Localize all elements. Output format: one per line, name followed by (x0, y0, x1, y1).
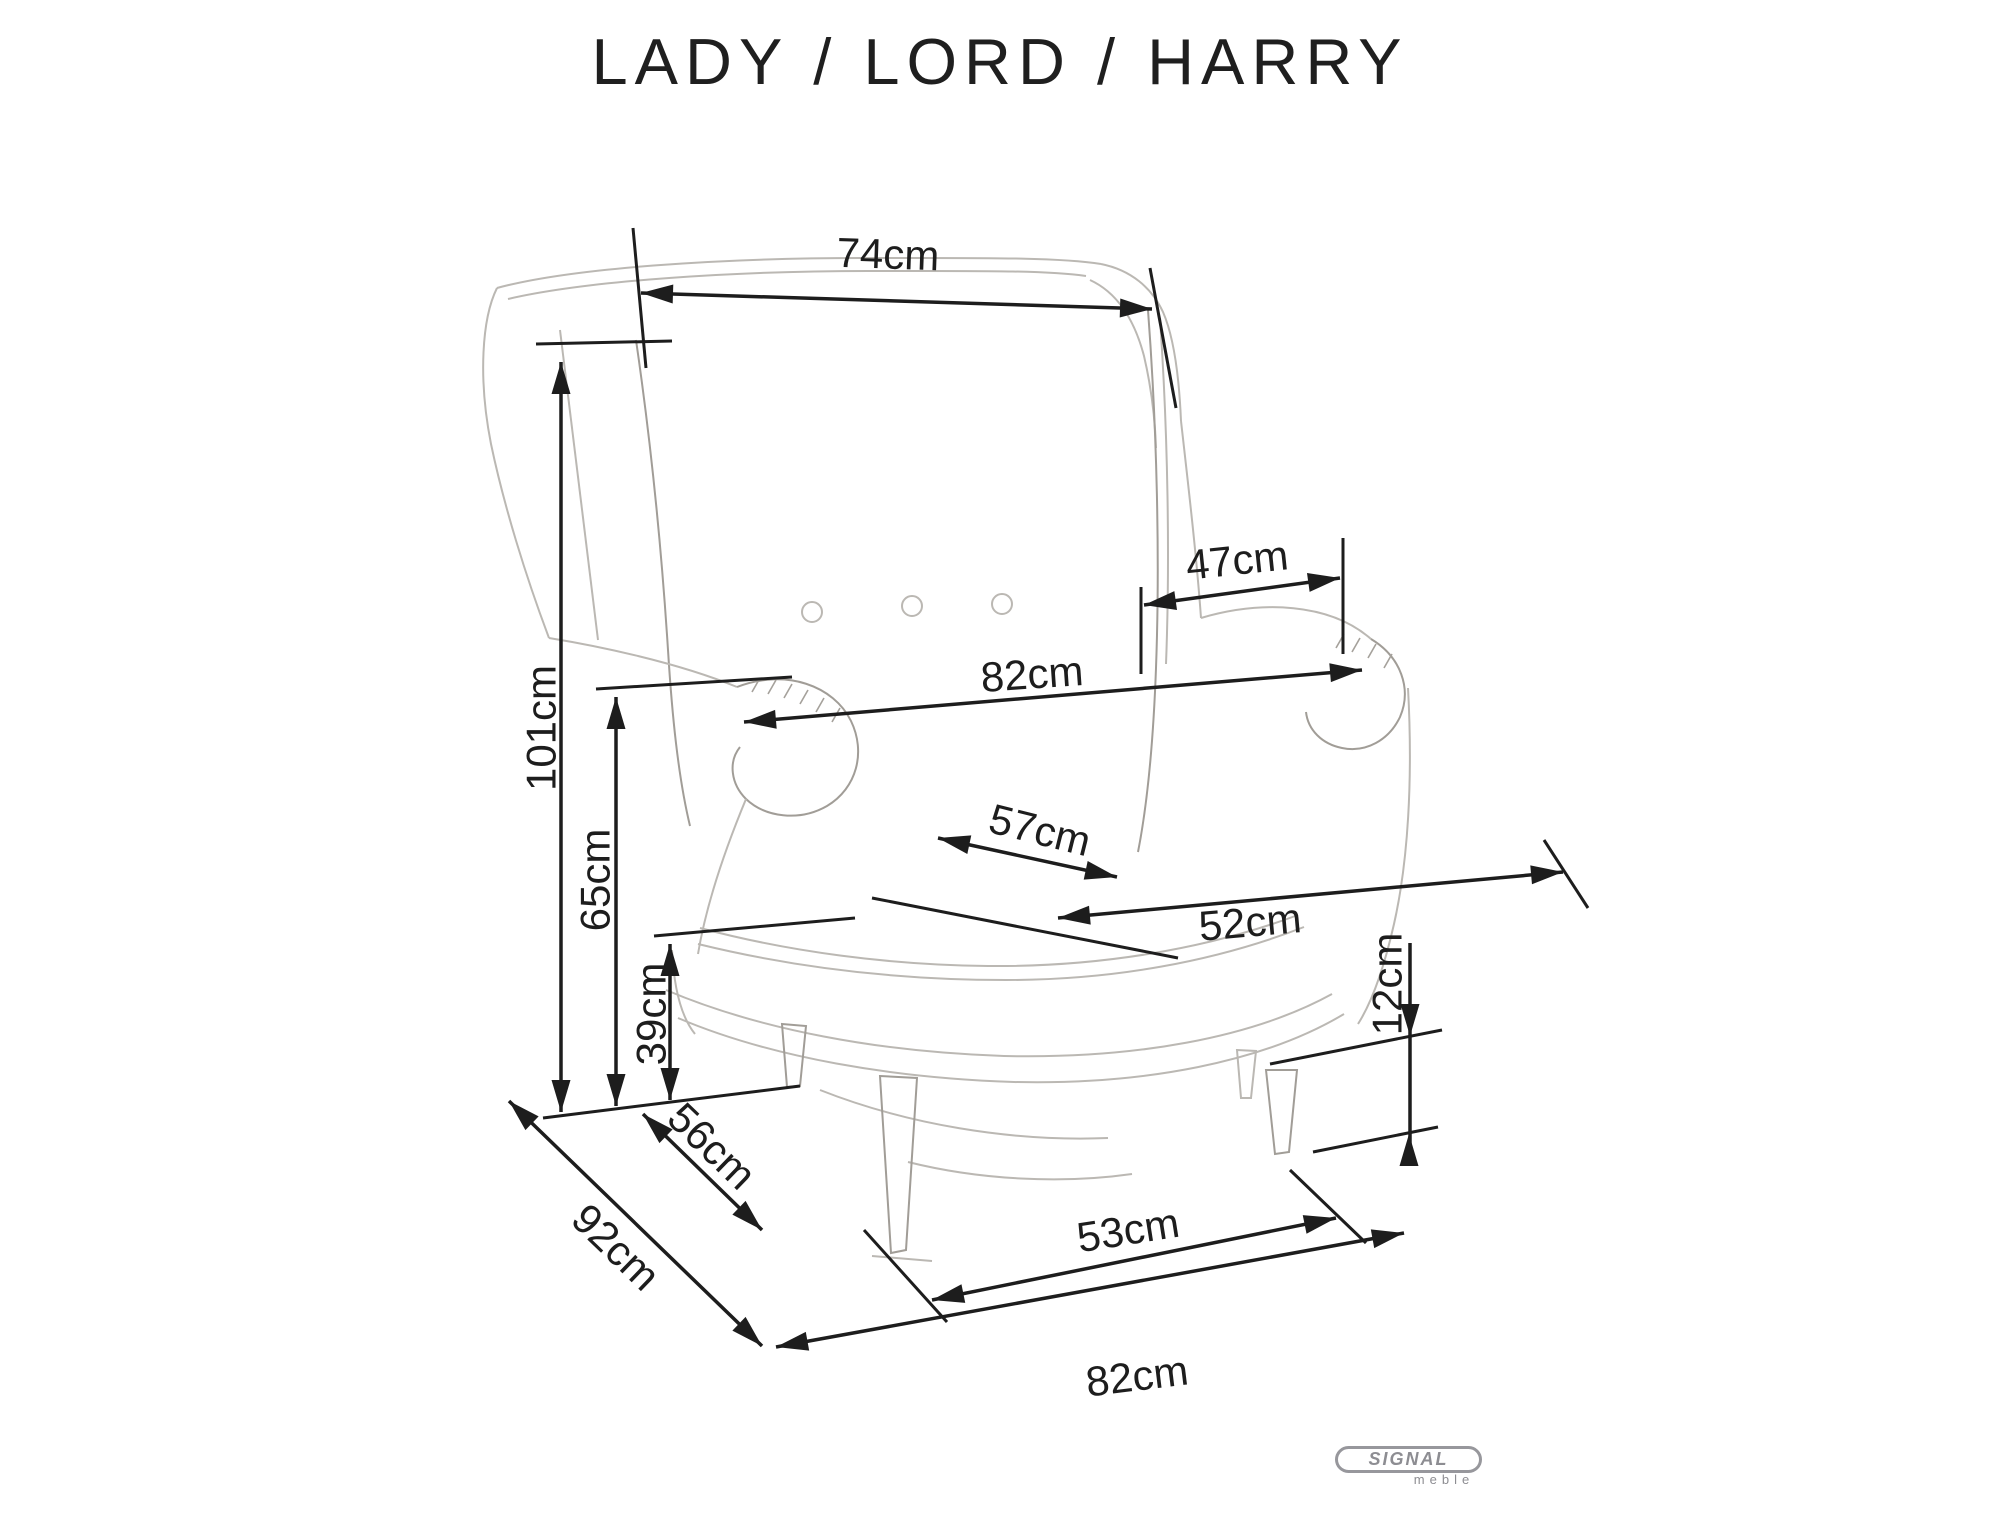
dimension-label: 47cm (1183, 531, 1290, 588)
dimension-label: 39cm (628, 963, 675, 1066)
extension-line (633, 228, 646, 368)
extension-line (1270, 1030, 1442, 1064)
arrowhead-icon (1400, 1134, 1419, 1166)
dimension-label: 82cm (1083, 1346, 1191, 1405)
extension-line (654, 918, 855, 936)
dimension-seat-width-47: 47cm (1141, 531, 1343, 674)
dimension-arm-width-82: 82cm (743, 647, 1363, 731)
arrowhead-icon (1057, 906, 1091, 928)
dimension-seat-front-52: 52cm (1057, 840, 1588, 950)
extension-line (872, 898, 1178, 958)
arrowhead-icon (552, 362, 571, 394)
dimension-leg-height-12: 12cm (1270, 933, 1442, 1166)
arrowhead-icon (936, 829, 971, 854)
arrowhead-icon (930, 1284, 965, 1309)
arrowhead-icon (641, 284, 674, 304)
arrowhead-icon (774, 1332, 809, 1356)
dimension-label: 65cm (572, 829, 619, 932)
extension-line (1313, 1127, 1438, 1152)
arrowhead-icon (1084, 861, 1119, 886)
dimension-label: 101cm (518, 665, 565, 791)
dimension-seat-depth-57: 57cm (872, 795, 1178, 958)
diagram-canvas: 74cm101cm65cm39cm56cm92cm82cm53cm12cm47c… (0, 0, 2000, 1530)
brand-logo: SIGNAL (1335, 1446, 1482, 1473)
arrowhead-icon (552, 1080, 571, 1112)
dimension-leg-span-53: 53cm (864, 1170, 1366, 1322)
dimension-annotations: 74cm101cm65cm39cm56cm92cm82cm53cm12cm47c… (502, 228, 1588, 1406)
extension-line (536, 341, 672, 344)
arrowhead-icon (607, 697, 626, 729)
dimension-label: 12cm (1364, 933, 1411, 1036)
dimension-diagram: LADY / LORD / HARRY (0, 0, 2000, 1530)
arrowhead-icon (607, 1074, 626, 1106)
dimension-line (641, 293, 1152, 309)
dimension-label: 74cm (836, 229, 940, 280)
dimension-label: 52cm (1197, 894, 1303, 950)
dimension-label: 57cm (984, 795, 1095, 865)
dimension-label: 92cm (563, 1194, 670, 1299)
arrowhead-icon (661, 1068, 680, 1100)
brand-name: SIGNAL (1368, 1449, 1448, 1470)
arrowhead-icon (1329, 661, 1362, 683)
extension-line (1290, 1170, 1366, 1243)
dimension-arm-height-65: 65cm (572, 677, 793, 1106)
arrowhead-icon (1530, 863, 1564, 885)
arrowhead-icon (743, 710, 776, 732)
dimension-top-width-74: 74cm (633, 228, 1176, 408)
dimension-label: 82cm (979, 647, 1085, 701)
armchair-sketch (483, 258, 1410, 1261)
extension-line (596, 677, 792, 689)
arrowhead-icon (1371, 1224, 1406, 1248)
dimension-seat-side-56: 56cm (636, 1093, 768, 1236)
dimension-line (1058, 872, 1563, 918)
brand-tagline: meble (1408, 1472, 1480, 1487)
